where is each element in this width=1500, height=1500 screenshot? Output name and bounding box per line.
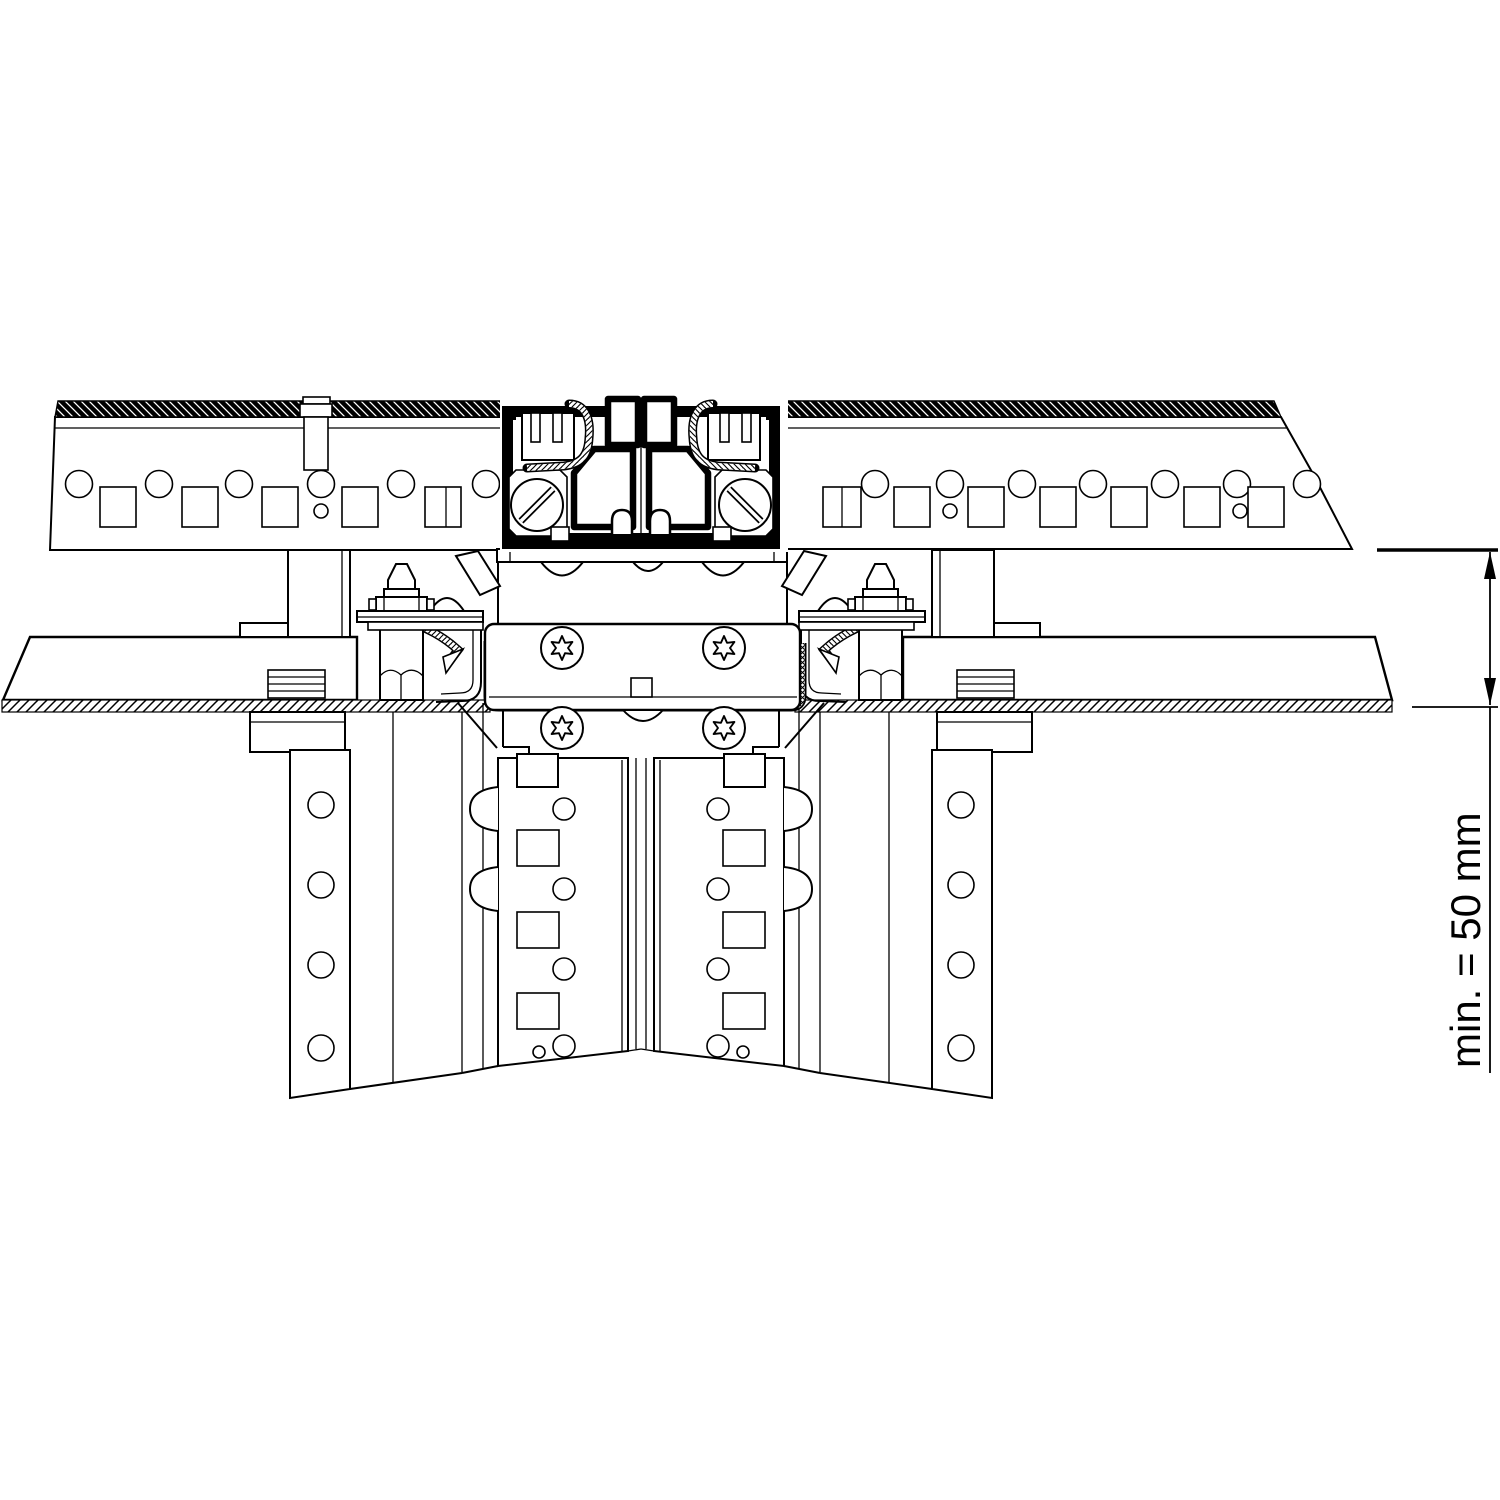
hex-bolt-assembly-left xyxy=(357,564,483,702)
support-channel-right xyxy=(641,703,1032,1098)
clamp-bracket xyxy=(485,624,801,749)
serrated-washer-left xyxy=(268,670,325,698)
support-channel-left xyxy=(250,703,641,1098)
serrated-washer-right xyxy=(957,670,1014,698)
torx-screw xyxy=(541,707,583,749)
dimension-annotation: min. = 50 mm xyxy=(1377,550,1498,1073)
dimension-arrow-down xyxy=(1484,678,1496,705)
drawing-stage: min. = 50 mm xyxy=(0,0,1500,1500)
torx-screw xyxy=(703,627,745,669)
support-channels xyxy=(250,703,1032,1098)
diagonal-brace-right xyxy=(782,551,826,595)
torx-screw xyxy=(703,707,745,749)
top-panel-tab xyxy=(300,397,332,470)
top-panel-left-body xyxy=(50,417,505,550)
torx-screw xyxy=(541,627,583,669)
technical-drawing-canvas: min. = 50 mm xyxy=(0,0,1500,1500)
carrier-body xyxy=(456,549,826,625)
dimension-label: min. = 50 mm xyxy=(1442,812,1489,1068)
dimension-arrow-up xyxy=(1484,552,1496,579)
sheet-panel-left-hatch xyxy=(2,700,490,712)
profile-half-right xyxy=(641,399,780,549)
profile-half-left xyxy=(502,399,641,549)
bracket-tab xyxy=(631,678,652,697)
dome-screw-head xyxy=(623,710,663,721)
extrusion-profile xyxy=(500,398,788,552)
sheet-panel-right-hatch xyxy=(795,700,1392,712)
diagonal-brace-left xyxy=(456,551,500,595)
